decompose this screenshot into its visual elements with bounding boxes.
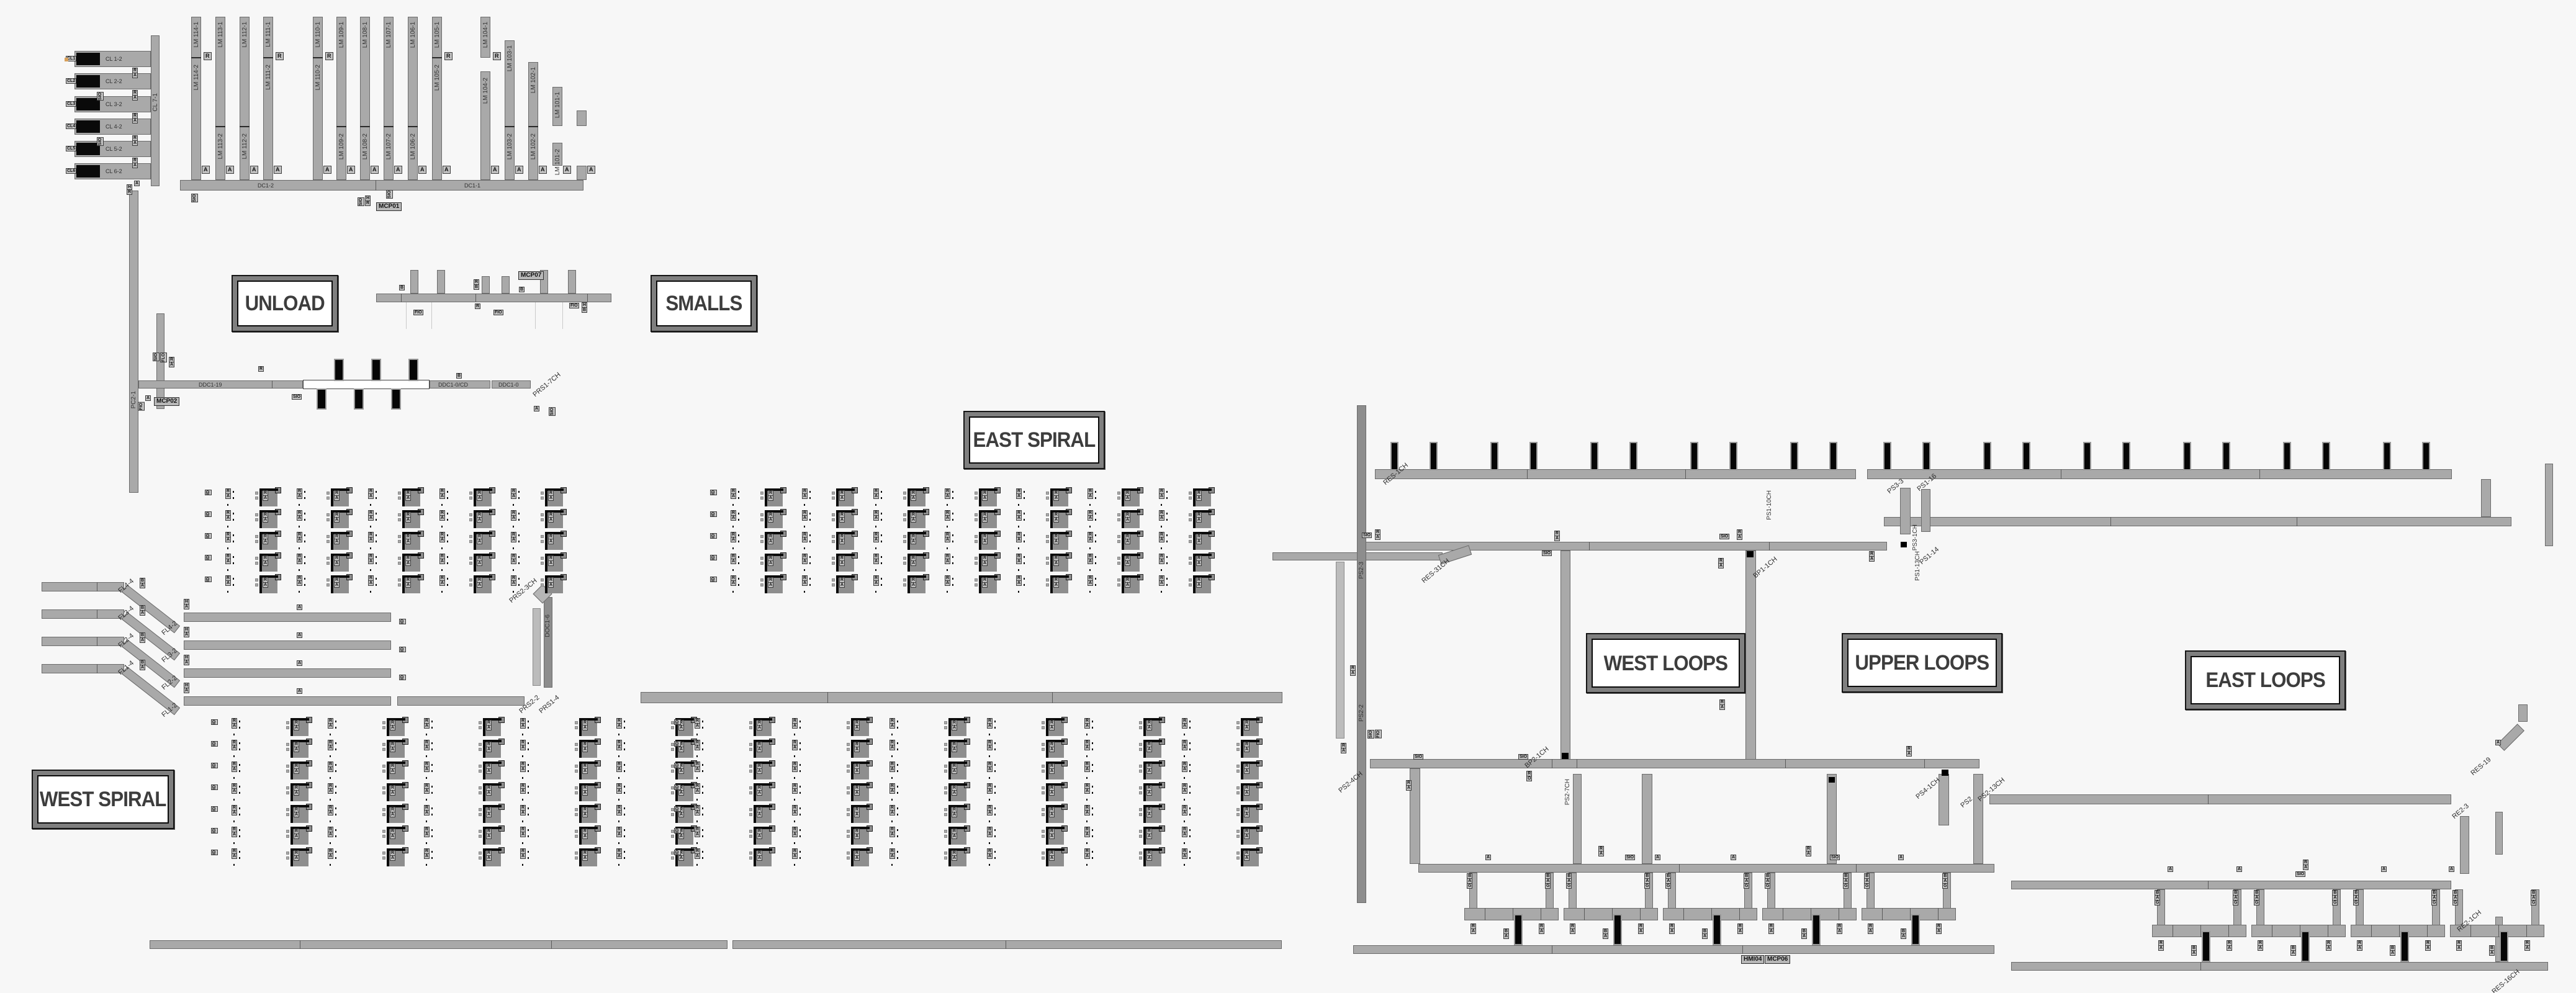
- dot: [518, 578, 520, 580]
- tag-a: A: [1655, 855, 1660, 860]
- conveyor-joint: [313, 57, 323, 58]
- station-side: [579, 829, 582, 845]
- conveyor-stub: [1900, 488, 1911, 534]
- dot: [1086, 864, 1088, 866]
- tag-stack-ra: RA: [582, 742, 588, 752]
- zone-button-smalls[interactable]: SMALLS: [651, 275, 757, 332]
- mcp07-button[interactable]: MCP07: [518, 271, 544, 280]
- tag-a: A: [225, 580, 231, 586]
- tag-sio: SIO: [2295, 871, 2305, 877]
- guide-line: [535, 302, 536, 329]
- sorter-unit-black: [2383, 442, 2391, 470]
- dot: [233, 513, 234, 514]
- tag-stack-ra: RA: [1768, 924, 1774, 934]
- tag-a: A: [297, 493, 302, 499]
- tag-stack-ra: RA: [520, 719, 526, 729]
- tag-stack-ra: RA: [1196, 578, 1202, 588]
- tag-a: A: [511, 515, 516, 521]
- station-chip: [847, 786, 850, 789]
- conveyor-id: LM 104-1: [482, 22, 489, 48]
- tag-stack-ra: RA: [1016, 489, 1022, 499]
- station-side: [259, 556, 262, 572]
- station-side: [754, 829, 756, 845]
- dot: [1166, 562, 1168, 564]
- tag-stack-ra: RA: [792, 827, 798, 837]
- conveyor-joint: [475, 294, 476, 302]
- dot: [1024, 556, 1025, 558]
- dot: [335, 829, 336, 831]
- tag-a: A: [1159, 559, 1164, 564]
- tag-stack-ra: RA: [2227, 941, 2232, 951]
- dot: [618, 755, 619, 757]
- station-side: [290, 764, 293, 780]
- conveyor-id: LM 101-1: [554, 92, 561, 118]
- tag-stack-ra: RA: [232, 849, 237, 859]
- station-chip: [1117, 578, 1120, 582]
- tag-a: A: [911, 495, 916, 501]
- tag-a: A: [232, 788, 237, 794]
- station-side: [579, 851, 582, 866]
- tag-a: A: [405, 560, 411, 566]
- zone-button-east-loops[interactable]: EAST LOOPS: [2185, 650, 2346, 710]
- dot: [335, 835, 336, 837]
- tag-stack-ba: BA: [1702, 929, 1708, 939]
- station-side: [754, 851, 756, 866]
- dot: [513, 569, 514, 571]
- tag-stack-ra: RA: [439, 532, 445, 542]
- tag-stack-ra: RA: [582, 786, 588, 796]
- tag-sio: SIO: [97, 137, 104, 146]
- station-chip: [975, 518, 978, 521]
- station-side: [851, 764, 853, 780]
- mcp02-button[interactable]: MCP02: [154, 397, 179, 406]
- tag-a: A: [1049, 790, 1055, 796]
- station-chip: [944, 791, 947, 794]
- tag-stack-ra: RA: [695, 719, 700, 729]
- dot: [431, 742, 433, 744]
- tag-a: A: [792, 853, 798, 859]
- tag-stack-ra: RA: [873, 554, 879, 564]
- zone-button-upper-loops[interactable]: UPPER LOOPS: [1842, 633, 2002, 693]
- zone-button-east-spiral[interactable]: EAST SPIRAL: [963, 411, 1105, 469]
- station-chip: [1236, 856, 1240, 860]
- tag-a: A: [768, 495, 773, 501]
- station-chip: [832, 583, 835, 586]
- conveyor-id: LM 106-2: [410, 133, 417, 160]
- dot: [897, 764, 898, 766]
- station-side: [754, 786, 756, 801]
- dot: [702, 851, 703, 853]
- conveyor-smalls-feeder: [376, 294, 611, 302]
- dot: [809, 541, 811, 542]
- station-chip: [255, 518, 258, 521]
- dot: [518, 491, 520, 493]
- station-chip: [1236, 813, 1240, 816]
- tag-a: A: [225, 493, 231, 499]
- conveyor-id: LM 108-1: [362, 22, 369, 48]
- tag-stack-ra: RA: [297, 511, 302, 521]
- station-chip: [479, 851, 482, 855]
- station-side: [836, 513, 839, 528]
- tag-a: A: [2158, 945, 2164, 951]
- dot: [618, 734, 619, 735]
- station-chip: [847, 851, 850, 855]
- dot: [518, 556, 520, 558]
- tag-stack-ra: RA: [768, 578, 773, 588]
- dot: [799, 727, 801, 729]
- station-chip: [749, 791, 752, 794]
- tag-a: A: [1182, 853, 1187, 859]
- tag-a: A: [1898, 855, 1904, 860]
- tag-a: A: [802, 537, 808, 542]
- dot: [624, 748, 625, 750]
- dot: [370, 547, 371, 549]
- sorter-unit-black: [1430, 442, 1438, 470]
- tag-g: G: [2531, 900, 2536, 905]
- tag-stack-bag: BAG: [2155, 891, 2160, 905]
- dot: [304, 513, 305, 514]
- tag-stack-ha: HA: [184, 683, 189, 693]
- tag-a: A: [802, 493, 808, 499]
- dot: [1092, 742, 1093, 744]
- tag-stack-ra: RA: [1053, 534, 1059, 544]
- dot: [952, 556, 953, 558]
- tag-stack-ba: BA: [2390, 946, 2395, 956]
- tag-a: A: [945, 493, 950, 499]
- conveyor-id: LM 113-2: [217, 133, 224, 160]
- station-side: [579, 764, 582, 780]
- station-chip: [1189, 518, 1192, 521]
- station-chip: [1236, 808, 1240, 811]
- dot: [233, 777, 235, 779]
- tag-stack-bag: BAG: [1843, 874, 1849, 889]
- tag-stack-ra: RA: [854, 721, 860, 730]
- station-side: [1193, 578, 1196, 593]
- tag-stack-ra: RA: [792, 806, 798, 816]
- tag-stack-ra: RA: [424, 827, 430, 837]
- tag-stack-ra: RA: [1053, 491, 1059, 501]
- tag-a: A: [695, 832, 700, 837]
- station-chip: [479, 765, 482, 768]
- guide-line: [562, 302, 563, 329]
- station-side: [402, 513, 405, 528]
- tag-stack-ra: RA: [731, 554, 736, 564]
- conveyor-id-cl7-1: CL 7-1: [152, 93, 159, 112]
- station-chip: [1139, 813, 1142, 816]
- conveyor-re2-1ch: [2460, 816, 2469, 874]
- dot: [447, 534, 448, 536]
- sorter-unit-black: [2222, 442, 2230, 470]
- tag-stack-ra: RA: [1088, 511, 1093, 521]
- conveyor-id: LM 108-2: [362, 133, 369, 160]
- station-chip: [1189, 583, 1192, 586]
- tag-a: A: [132, 163, 138, 168]
- station-chip: [1139, 856, 1142, 860]
- station-chip: [479, 830, 482, 833]
- tag-stack-ra: RA: [486, 721, 492, 730]
- tag-stack-ra: RA: [390, 786, 395, 796]
- dot: [897, 727, 898, 729]
- tag-a: A: [520, 788, 526, 794]
- tag-a: A: [802, 515, 808, 521]
- tag-a: A: [232, 853, 237, 859]
- tag-stack-ra: RA: [520, 849, 526, 859]
- dot: [618, 820, 619, 822]
- station-chip: [1189, 492, 1192, 495]
- tag-r: R: [325, 52, 333, 60]
- station-chip: [541, 583, 544, 586]
- dot: [376, 562, 377, 564]
- tag-stack-ra: RA: [952, 807, 957, 817]
- dot: [330, 755, 331, 757]
- tag-stack-ra: RA: [982, 534, 988, 544]
- hmi04-button[interactable]: HMI04: [1741, 955, 1764, 964]
- tag-stack-ba: BA: [2489, 946, 2495, 956]
- tag-stack-ra: RA: [520, 827, 526, 837]
- tag-stack-ra: RA: [1719, 700, 1725, 710]
- station-side: [1143, 851, 1146, 866]
- tag-a: A: [873, 493, 879, 499]
- tag-a: A: [297, 580, 302, 586]
- dot: [426, 755, 427, 757]
- tag-fio: FIO: [138, 402, 145, 411]
- tag-stack-ra: RA: [1159, 489, 1164, 499]
- station-chip: [1117, 583, 1120, 586]
- tag-a: A: [511, 559, 516, 564]
- tag-stack-ra: RA: [477, 491, 482, 501]
- dot: [809, 578, 811, 580]
- tag-a: A: [294, 768, 299, 774]
- tag-stack-ra: RA: [582, 829, 588, 839]
- tag-stack-ra: RA: [263, 556, 268, 566]
- dot: [804, 526, 805, 528]
- dot: [891, 820, 893, 822]
- dot: [447, 513, 448, 514]
- sorter-unit-black: [2422, 442, 2430, 470]
- dot: [528, 770, 529, 772]
- tag-stack-ra: RA: [225, 576, 231, 586]
- tag-a: A: [539, 166, 547, 174]
- zone-button-unload[interactable]: UNLOAD: [232, 275, 338, 332]
- tag-a: A: [1088, 537, 1093, 542]
- dot: [947, 547, 948, 549]
- tag-a: A: [328, 810, 333, 816]
- tag-a: A: [2191, 950, 2197, 956]
- dot: [233, 491, 234, 493]
- dot: [239, 814, 240, 816]
- tag-stack-bag: BAG: [1545, 874, 1551, 889]
- stop-marker: [1562, 753, 1569, 759]
- dot: [528, 764, 529, 766]
- dot: [376, 497, 377, 499]
- tag-stack-ra: RA: [802, 532, 808, 542]
- station-side: [754, 807, 756, 823]
- tag-stack-ra: RA: [731, 576, 736, 586]
- tag-stack-ra: RA: [2326, 941, 2331, 951]
- tag-a: A: [140, 665, 145, 670]
- tag-a: A: [371, 166, 379, 174]
- station-chip: [944, 770, 947, 773]
- dot: [1166, 513, 1168, 514]
- tag-a: A: [1554, 536, 1560, 541]
- station-chip: [382, 813, 385, 816]
- dot: [947, 569, 948, 571]
- dot: [431, 770, 433, 772]
- tag-a: A: [368, 493, 374, 499]
- tag-stack-ra: RA: [232, 740, 237, 750]
- station-chip: [1236, 791, 1240, 794]
- dot: [1161, 547, 1162, 549]
- station-side: [907, 513, 910, 528]
- tag-a: A: [439, 515, 445, 521]
- tag-stack-ra: RA: [768, 534, 773, 544]
- tag-stack-bag: BAG: [2531, 891, 2536, 905]
- conveyor-joint: [505, 126, 515, 127]
- dot: [794, 864, 795, 866]
- conveyor-id: LM 109-2: [338, 133, 345, 160]
- dot: [624, 857, 625, 859]
- tag-a: A: [1470, 928, 1476, 934]
- tag-a: A: [1016, 493, 1022, 499]
- dot: [1086, 734, 1088, 735]
- dot: [702, 807, 703, 809]
- station-side: [331, 491, 333, 506]
- tag-sio: SIO: [153, 353, 160, 361]
- tag-a: A: [582, 768, 588, 774]
- dot: [1092, 829, 1093, 831]
- loop-divert-black: [2301, 931, 2310, 962]
- conveyor-joint: [272, 380, 272, 389]
- tag-stack-ra: RA: [486, 764, 492, 774]
- dot: [1166, 519, 1168, 521]
- conveyor-joint: [1711, 908, 1712, 920]
- dot: [1189, 764, 1191, 766]
- zone-button-west-loops[interactable]: WEST LOOPS: [1586, 633, 1745, 693]
- station-side: [1050, 491, 1053, 506]
- dot: [881, 534, 882, 536]
- dot: [233, 864, 235, 866]
- station-side: [1050, 578, 1053, 593]
- station-side: [948, 829, 951, 845]
- conveyor-bottom-west: [150, 940, 727, 949]
- station-chip: [1046, 535, 1049, 538]
- mcp01-button[interactable]: MCP01: [376, 202, 402, 211]
- dot: [624, 835, 625, 837]
- conveyor-upper-loops-feed: [1745, 550, 1756, 765]
- conveyor-id-ps1-10ch: PS1-10CH: [1766, 490, 1773, 520]
- conveyor-id-ps1-14: PS1-14: [1918, 546, 1940, 566]
- tag-stack-ra: RA: [439, 554, 445, 564]
- dot: [881, 556, 882, 558]
- tag-stack-ra: RA: [757, 721, 762, 730]
- conveyor-id: LM 107-1: [385, 22, 392, 48]
- dot: [702, 792, 703, 794]
- conveyor-ps2-spine: [1357, 405, 1366, 903]
- divert-unit-black: [334, 359, 344, 381]
- tag-stack-ra: RA: [1053, 556, 1059, 566]
- dot: [239, 829, 240, 831]
- dot: [376, 534, 377, 536]
- dot: [624, 721, 625, 722]
- tag-a: A: [424, 723, 430, 729]
- tag-stack-ra: RA: [1906, 747, 1912, 757]
- dot: [1095, 491, 1096, 493]
- tag-stack-bag: BAG: [2452, 891, 2458, 905]
- conveyor-joint: [1485, 908, 1485, 920]
- tag-stack-ra: RA: [616, 784, 622, 794]
- station-chip: [1042, 851, 1045, 855]
- dot: [330, 820, 331, 822]
- tag-stack-ra: RA: [1125, 534, 1130, 544]
- tag-a: A: [390, 790, 395, 796]
- tag-a: A: [695, 810, 700, 816]
- station-chip: [1046, 578, 1049, 582]
- dot: [809, 562, 811, 564]
- station-chip: [975, 496, 978, 500]
- sorter-unit-black: [1690, 442, 1698, 470]
- tag-a: A: [839, 495, 845, 501]
- conveyor-joint: [384, 126, 394, 127]
- station-chip: [1117, 496, 1120, 500]
- tag-a: A: [486, 833, 492, 839]
- station-side: [387, 764, 389, 780]
- tag-stack-ra: RA: [616, 740, 622, 750]
- tag-stack-ra: RA: [297, 532, 302, 542]
- tag-a: A: [390, 768, 395, 774]
- station-side: [1046, 851, 1048, 866]
- dot: [239, 857, 240, 859]
- station-side: [836, 534, 839, 550]
- tag-a: A: [368, 559, 374, 564]
- tag-stack-ra: RA: [486, 807, 492, 817]
- station-side: [1122, 513, 1124, 528]
- dot: [799, 786, 801, 788]
- station-side: [1143, 786, 1146, 801]
- station-chip: [398, 513, 401, 516]
- tag-cl4: CL4: [66, 124, 76, 129]
- tag-sio: SIO: [1719, 534, 1729, 539]
- station-side: [1046, 742, 1048, 758]
- tag-a: A: [582, 790, 588, 796]
- dot: [732, 504, 734, 506]
- conveyor-joint: [1811, 908, 1811, 920]
- loop-rail: [1464, 908, 1559, 920]
- station-side: [290, 829, 293, 845]
- conveyor-id: LM 112-2: [241, 133, 248, 160]
- tag-stack-ra: RA: [1718, 559, 1724, 568]
- stop-marker: [1829, 777, 1835, 783]
- station-chip: [1117, 518, 1120, 521]
- station-chip: [398, 562, 401, 565]
- station-chip: [749, 721, 752, 724]
- tag-a: A: [987, 723, 993, 729]
- dot: [447, 562, 448, 564]
- station-chip: [382, 765, 385, 768]
- conveyor-id-res-19: RES-19: [2469, 756, 2492, 777]
- tag-stack-ra: RA: [952, 829, 957, 839]
- dot: [799, 829, 801, 831]
- tag-stack-ra: RA: [695, 740, 700, 750]
- zone-button-west-spiral[interactable]: WEST SPIRAL: [32, 770, 174, 829]
- mcp06-button[interactable]: MCP06: [1765, 955, 1790, 964]
- sorter-unit-black: [1590, 442, 1598, 470]
- station-chip: [286, 813, 289, 816]
- conveyor-joint: [1910, 908, 1911, 920]
- dot: [897, 786, 898, 788]
- dot: [897, 814, 898, 816]
- dot: [624, 742, 625, 744]
- tag-stack-ra: RA: [132, 158, 138, 168]
